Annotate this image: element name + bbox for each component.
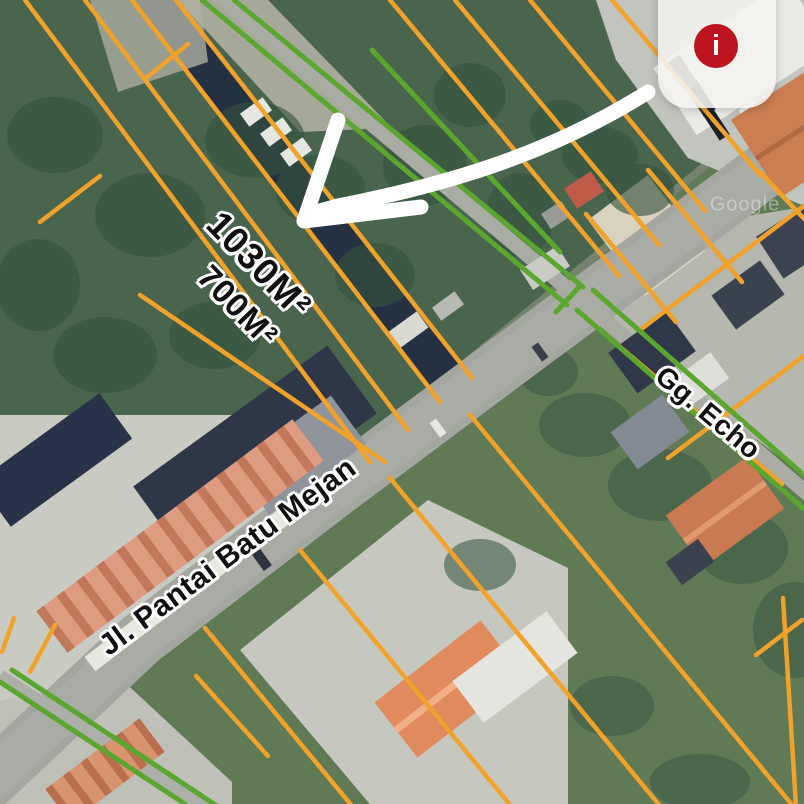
info-card: i bbox=[658, 0, 776, 108]
info-icon: i bbox=[712, 32, 720, 61]
info-button[interactable]: i bbox=[694, 24, 738, 68]
map-provider-watermark: Google bbox=[710, 194, 781, 217]
listing-photo-viewer: 1030M² 700M² Jl. Pantai Batu Mejan Gg. E… bbox=[0, 0, 804, 804]
